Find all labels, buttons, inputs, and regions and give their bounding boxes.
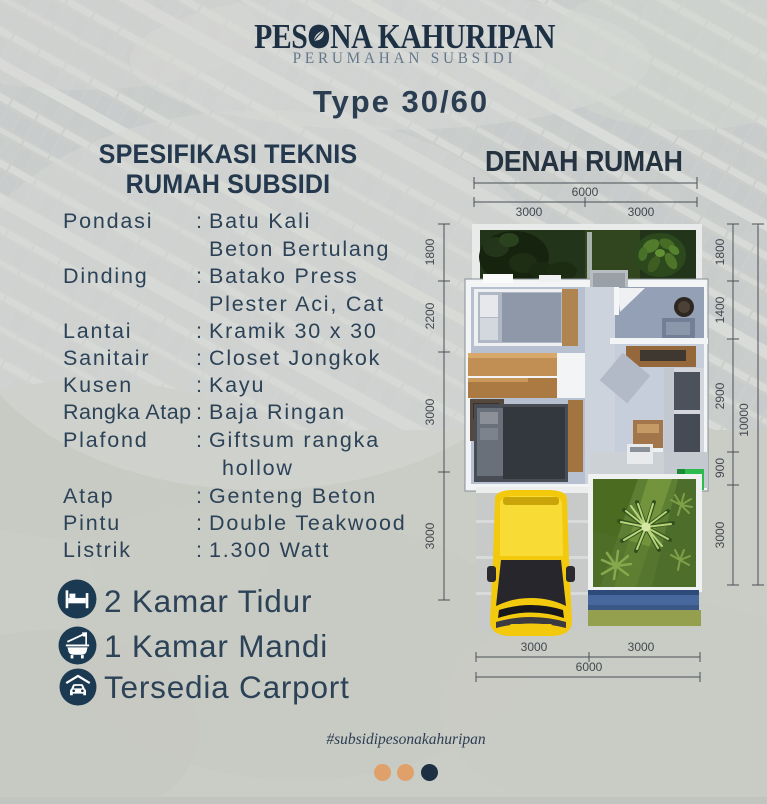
svg-text:1800: 1800: [713, 238, 727, 265]
svg-text:10000: 10000: [737, 403, 751, 437]
svg-text:3000: 3000: [423, 398, 437, 425]
svg-text:3000: 3000: [423, 522, 437, 549]
svg-text:1800: 1800: [423, 238, 437, 265]
svg-text:3000: 3000: [628, 205, 655, 219]
svg-text:900: 900: [713, 458, 727, 478]
svg-text:2900: 2900: [713, 382, 727, 409]
svg-text:6000: 6000: [572, 185, 599, 199]
svg-text:3000: 3000: [521, 640, 548, 654]
svg-text:3000: 3000: [628, 640, 655, 654]
svg-text:6000: 6000: [576, 660, 603, 674]
svg-text:2200: 2200: [423, 302, 437, 329]
svg-text:3000: 3000: [713, 521, 727, 548]
svg-text:1400: 1400: [713, 296, 727, 323]
svg-text:3000: 3000: [516, 205, 543, 219]
